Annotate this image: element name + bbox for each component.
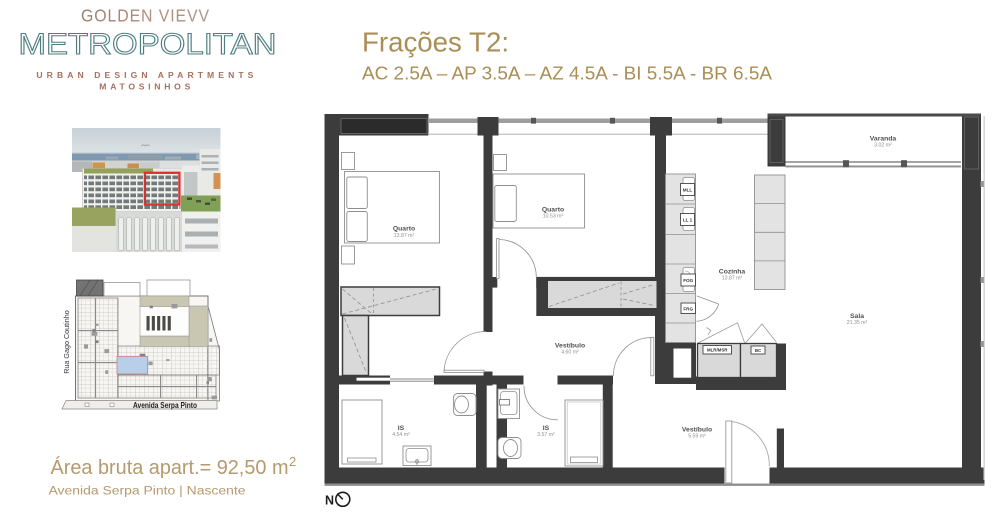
svg-text:Quarto: Quarto [542,206,564,213]
svg-text:Vestíbulo: Vestíbulo [682,427,712,434]
svg-text:FRG: FRG [683,306,693,311]
svg-text:MLR/MSR: MLR/MSR [707,348,728,353]
svg-text:LL 1: LL 1 [683,218,693,223]
svg-text:GOLDEN VIEVV: GOLDEN VIEVV [81,6,210,26]
svg-text:BC: BC [755,348,762,353]
svg-text:N: N [325,494,334,508]
svg-text:AC 2.5A – AP 3.5A – AZ 4.5A -: AC 2.5A – AP 3.5A – AZ 4.5A - BI 5.5A - … [362,63,773,84]
svg-text:4.54 m²: 4.54 m² [392,432,410,438]
svg-text:FOG: FOG [683,278,693,283]
svg-text:Avenida Serpa Pinto: Avenida Serpa Pinto [133,401,197,410]
svg-text:METROPOLITAN: METROPOLITAN [19,28,277,61]
svg-text:MLL: MLL [683,188,693,193]
svg-text:10.53 m²: 10.53 m² [543,213,564,219]
svg-text:5.59 m²: 5.59 m² [688,434,706,440]
svg-text:Sala: Sala [850,313,864,320]
svg-text:Quarto: Quarto [393,226,415,233]
svg-text:3.02 m²: 3.02 m² [874,142,892,148]
svg-text:3.57 m²: 3.57 m² [537,432,555,438]
svg-text:Avenida Serpa Pinto | Nascente: Avenida Serpa Pinto | Nascente [49,486,246,498]
svg-text:Rua Gago Coutinho: Rua Gago Coutinho [62,310,71,374]
svg-text:Vestíbulo: Vestíbulo [555,343,585,350]
svg-text:URBAN DESIGN APARTMENTS: URBAN DESIGN APARTMENTS [36,70,253,80]
svg-text:21.35 m²: 21.35 m² [847,320,868,326]
svg-text:MATOSINHOS: MATOSINHOS [99,82,190,92]
svg-text:4.60 m²: 4.60 m² [561,350,579,356]
svg-text:13.87 m²: 13.87 m² [722,276,743,282]
svg-text:Frações T2:: Frações T2: [362,26,509,57]
svg-text:2: 2 [289,454,296,469]
svg-text:Cozinha: Cozinha [719,269,746,276]
svg-text:Área bruta apart.= 92,50 m: Área bruta apart.= 92,50 m [51,456,289,479]
svg-text:13.87 m²: 13.87 m² [394,233,415,239]
